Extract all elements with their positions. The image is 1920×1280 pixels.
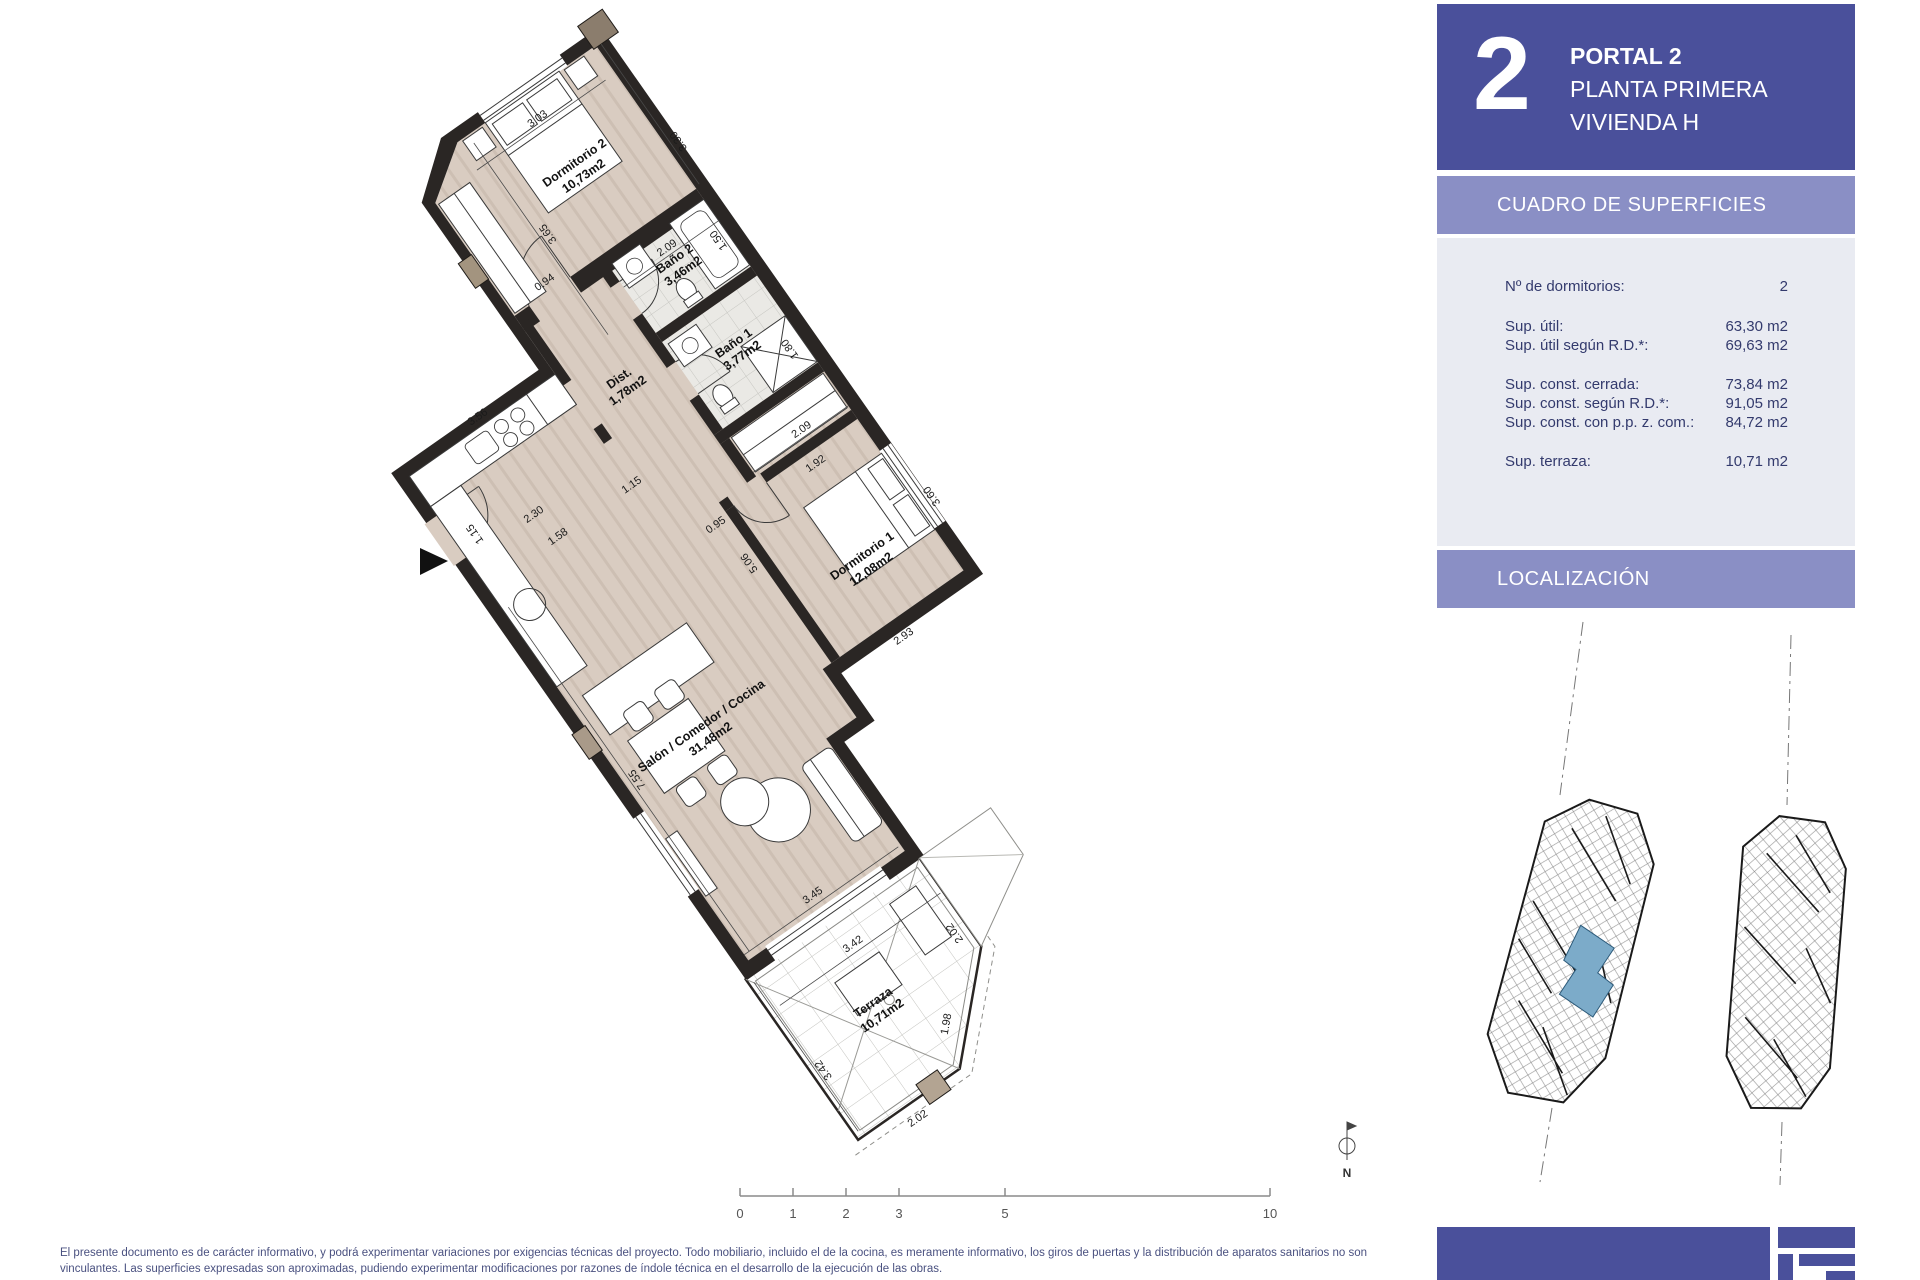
scale-tick: 10	[1263, 1206, 1277, 1221]
table-row: Sup. útil:63,30 m2	[1505, 318, 1788, 337]
disclaimer: El presente documento es de carácter inf…	[60, 1245, 1390, 1277]
scale-tick: 3	[895, 1206, 902, 1221]
building-locator	[1437, 608, 1855, 1227]
floor	[268, 45, 1076, 960]
scale-tick: 0	[736, 1206, 743, 1221]
panel-header: 2 PORTAL 2 PLANTA PRIMERA VIVIENDA H	[1437, 4, 1855, 170]
scale-tick: 2	[842, 1206, 849, 1221]
scale-tick: 5	[1001, 1206, 1008, 1221]
title-vivienda: VIVIENDA H	[1570, 106, 1768, 139]
brand-logo	[1778, 1227, 1855, 1248]
table-row: Nº de dormitorios:2	[1505, 278, 1788, 297]
north-compass-icon: N	[1339, 1122, 1356, 1180]
table-row: Sup. terraza:10,71 m2	[1505, 453, 1788, 472]
building-portal2	[1475, 790, 1665, 1114]
entrance-marker	[420, 548, 448, 575]
localizacion-header: LOCALIZACIÓN	[1437, 550, 1855, 608]
disclaimer-line2: vinculantes. Las superficies expresadas …	[60, 1261, 1390, 1277]
scale-tick: 1	[789, 1206, 796, 1221]
portal-number: 2	[1473, 22, 1531, 126]
title-portal: PORTAL 2	[1570, 40, 1768, 73]
title-planta: PLANTA PRIMERA	[1570, 73, 1768, 106]
panel-title: PORTAL 2 PLANTA PRIMERA VIVIENDA H	[1570, 40, 1768, 139]
superficies-header: CUADRO DE SUPERFICIES	[1437, 176, 1855, 234]
apartment-plan: Dormitorio 2 10,73m2 Baño 2 3,46m2 Dist.…	[234, 9, 1231, 1165]
dim-label: 2.02	[906, 1108, 930, 1130]
table-row: Sup. const. con p.p. z. com.:84,72 m2	[1505, 414, 1788, 433]
footer-band	[1437, 1227, 1770, 1280]
floorplan-canvas: Dormitorio 2 10,73m2 Baño 2 3,46m2 Dist.…	[0, 0, 1437, 1280]
table-row: Sup. const. cerrada:73,84 m2	[1505, 376, 1788, 395]
table-row: Sup. útil según R.D.*:69,63 m2	[1505, 337, 1788, 356]
table-row: Sup. const. según R.D.*:91,05 m2	[1505, 395, 1788, 414]
disclaimer-line1: El presente documento es de carácter inf…	[60, 1245, 1390, 1261]
building-other	[1723, 814, 1849, 1114]
scale-bar: 0 1 2 3 5 10	[736, 1188, 1277, 1221]
north-label: N	[1343, 1166, 1352, 1180]
surfaces-table: Nº de dormitorios:2 Sup. útil:63,30 m2 S…	[1437, 238, 1855, 546]
